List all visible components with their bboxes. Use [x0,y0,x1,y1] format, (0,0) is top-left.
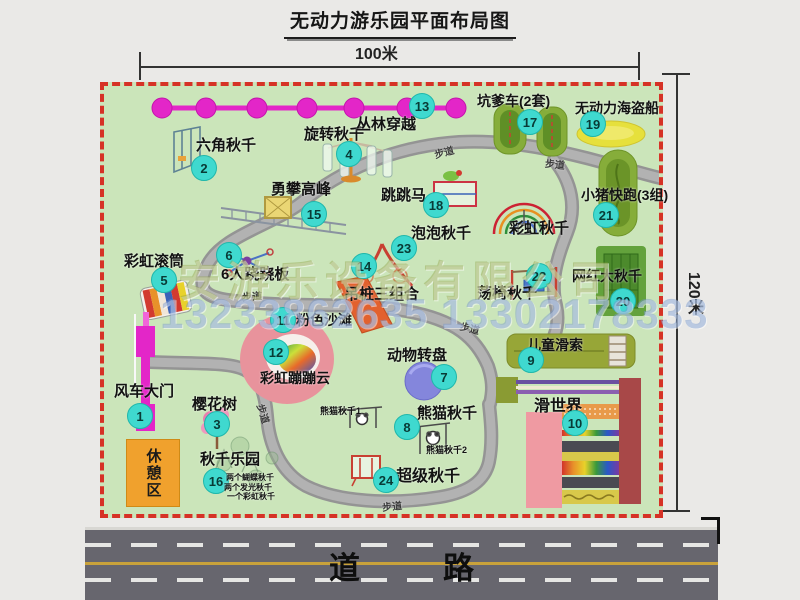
jumping-horse-icon [434,170,476,206]
cherry-tree-icon [201,408,229,449]
super-swing-icon [352,456,380,486]
dimension-label-height: 120米 [681,272,705,315]
screenshot-stage: 无动力游乐园平面布局图 100米 120米 [0,0,800,600]
windmill-gate-icon [135,312,155,431]
kids-zipline-icon [507,334,635,368]
corner-mark [701,517,720,544]
dimension-tick-right-top [662,73,690,75]
big-net-swing-icon [596,246,646,316]
animal-carousel-icon [405,362,443,400]
pirate-ship-icon [577,121,645,147]
panda-swing-icon [344,407,450,454]
page-title: 无动力游乐园平面布局图 [284,6,516,39]
dimension-tick-right-bottom [662,510,690,512]
dimension-tick-top-left [139,52,141,80]
rest-area-label: 休憩区 [143,448,164,499]
road: 道 路 [85,527,718,600]
jungle-crossing-line [152,98,466,118]
piggy-run-icon [599,150,637,236]
rainbow-swing-icon [494,204,554,234]
park-map: 休憩区 步道步道步道步道步道步道 风车大门1六角秋千2樱花树3旋转秋千4彩虹滚筒… [100,82,663,518]
six-person-seesaw-icon [222,248,273,276]
dimension-line-top [140,66,640,68]
title-wrap: 无动力游乐园平面布局图 [0,6,800,39]
slide-world-icon [496,377,641,508]
dimension-line-right [676,74,678,512]
rest-area: 休憩区 [126,439,180,507]
dimension-label-width: 100米 [355,40,398,64]
road-label: 道 路 [85,543,718,588]
map-artwork [104,86,659,514]
hexagon-swing-icon [174,127,200,172]
dimension-tick-top-right [638,52,640,80]
pink-beach-icon [240,314,334,404]
